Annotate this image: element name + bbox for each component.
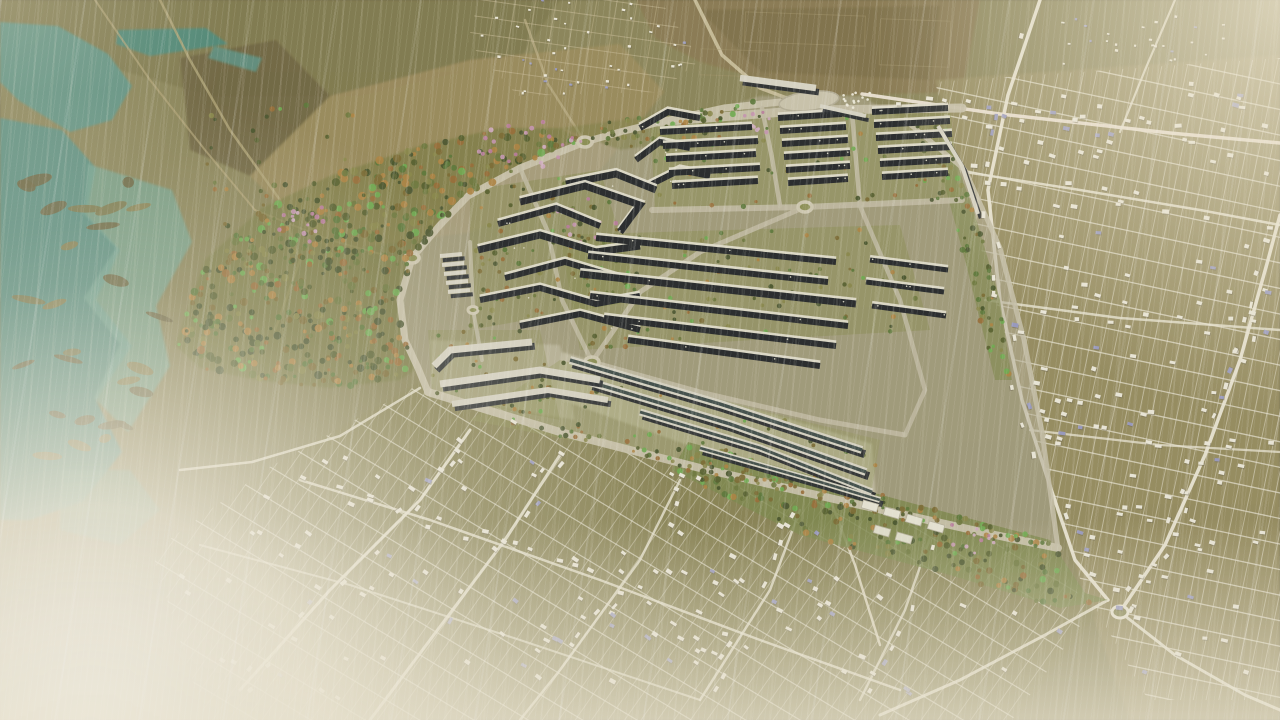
scene-canvas	[0, 0, 1280, 720]
layer-atmosphere-washes	[0, 0, 1280, 720]
aerial-masterplan-render	[0, 0, 1280, 720]
